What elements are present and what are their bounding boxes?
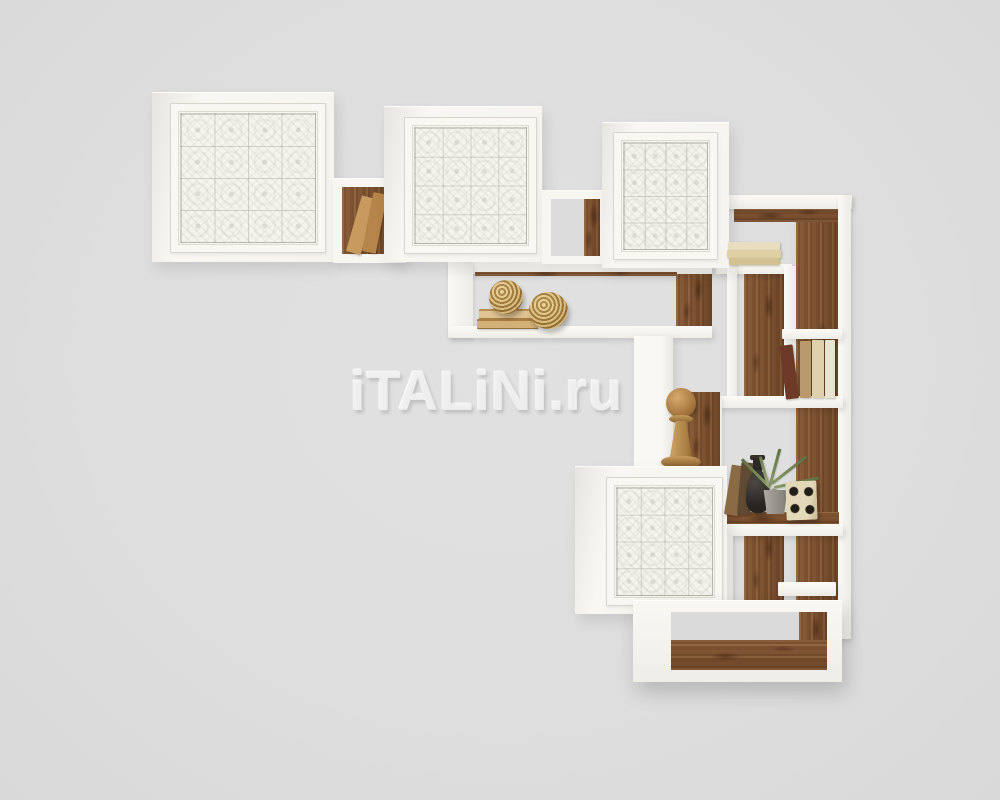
cabinet-1-patterned-door <box>170 103 326 253</box>
bottom-open-box <box>633 600 842 682</box>
cabinet-2-tile-pattern <box>414 127 527 244</box>
open-cube-b <box>542 190 609 264</box>
cabinet-4 <box>575 466 727 614</box>
flat-book <box>477 319 538 329</box>
right-outer-edge <box>838 195 851 639</box>
cabinet-3-patterned-door <box>613 132 718 260</box>
wood-panel-inner-upper <box>744 266 784 400</box>
shelf-wood-right-block <box>676 274 712 326</box>
lower-platform-board <box>778 582 836 596</box>
bottom-box-wood-floor <box>671 640 827 670</box>
dice-box <box>785 480 817 520</box>
stacked-book <box>729 258 779 265</box>
cabinet-4-patterned-door <box>606 477 723 606</box>
wood-lintel-strip <box>734 208 838 222</box>
cabinet-2 <box>384 106 542 262</box>
pawn-head <box>666 388 696 418</box>
standing-book <box>800 341 811 398</box>
cabinet-2-patterned-door <box>404 117 537 254</box>
standing-book <box>825 340 835 398</box>
wood-panel-right-column <box>796 208 838 632</box>
tall-compartment-left-strip <box>727 264 737 400</box>
cabinet-3 <box>602 122 729 268</box>
rope-knot-ball <box>529 292 568 329</box>
display-cube-bottom-board <box>710 524 843 536</box>
open-cube-b-wood-side <box>584 199 600 256</box>
cabinet-1-tile-pattern <box>180 113 316 243</box>
stacked-book <box>727 250 781 258</box>
cabinet-1 <box>152 92 334 262</box>
shelf-wood-underside <box>475 272 677 276</box>
product-photo-canvas: iTALiNi.ru <box>0 0 1000 800</box>
book-cube-top-board <box>782 329 842 339</box>
cabinet-4-tile-pattern <box>616 487 713 596</box>
watermark: iTALiNi.ru <box>350 358 623 423</box>
rope-knot-ball <box>489 280 523 314</box>
cabinet-3-tile-pattern <box>623 142 708 250</box>
standing-book <box>812 340 824 398</box>
stacked-book <box>728 242 780 250</box>
